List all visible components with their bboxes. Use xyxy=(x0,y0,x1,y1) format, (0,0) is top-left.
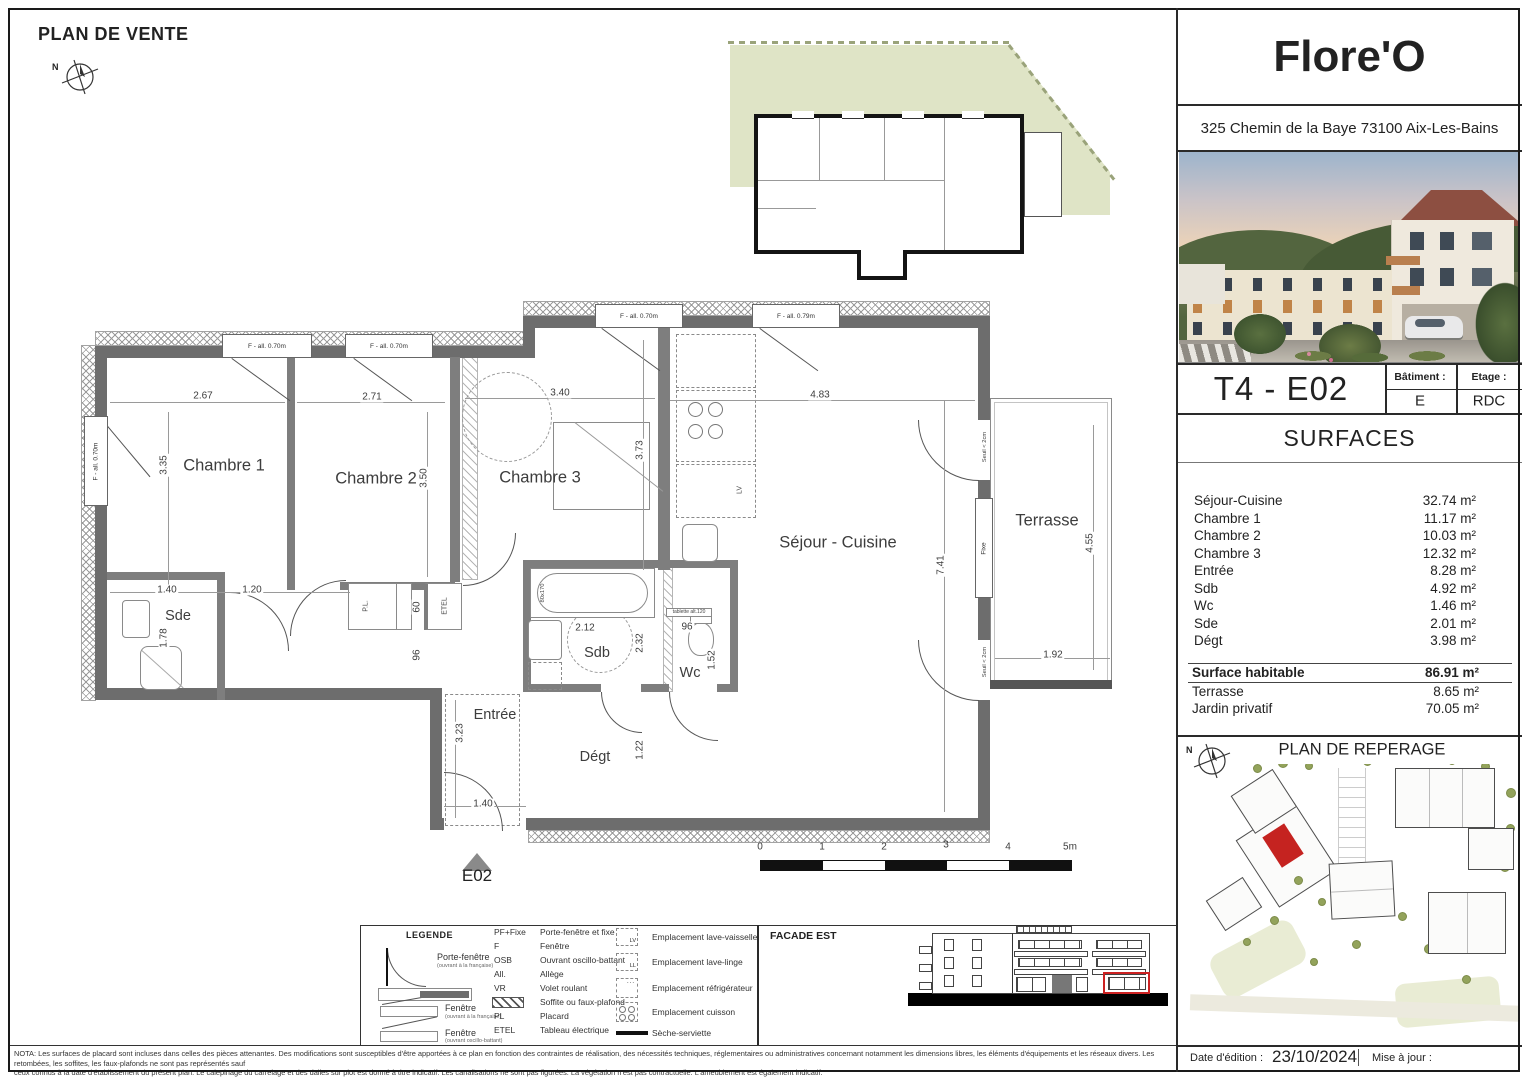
inset-partition xyxy=(758,180,944,181)
scale-tick: 3 xyxy=(941,840,951,851)
inset-partition xyxy=(758,208,816,209)
dim-line xyxy=(427,412,428,577)
placard-label: P.L. xyxy=(363,600,370,612)
project-address: 325 Chemin de la Baye 73100 Aix-Les-Bain… xyxy=(1201,120,1499,137)
turning-circle xyxy=(462,372,552,462)
dim-line xyxy=(455,700,456,818)
legend-abbr: F xyxy=(494,941,499,951)
dim: 1.40 xyxy=(155,585,178,596)
facade-roof-rail xyxy=(1016,926,1072,933)
window-label: F - all. 0.70m xyxy=(248,343,286,350)
legend-drawing-sub: (ouvrant oscillo-battant) xyxy=(445,1038,502,1044)
reperage-north-label: N xyxy=(1186,745,1193,755)
dim: 3.23 xyxy=(455,721,466,744)
room-label-sde: Sde xyxy=(165,608,191,624)
seuil-label: Seuil < 2cm xyxy=(982,432,988,462)
total-value: 70.05 m² xyxy=(1426,700,1479,718)
legend-door-leaf xyxy=(386,948,388,986)
window-label: F - all. 0.70m xyxy=(93,442,100,480)
dim-line xyxy=(944,400,945,812)
scale-tick: 5m xyxy=(1061,842,1079,853)
facade-balcony-slab xyxy=(1014,969,1088,975)
sidebar-divider xyxy=(1176,8,1178,1072)
chambre3-door-arc xyxy=(463,533,516,586)
jardin-inset xyxy=(722,22,1122,267)
fixed-window-terrasse: Fixe xyxy=(975,498,993,598)
bathtub-size-label: 80x170 xyxy=(540,583,546,602)
facade-balcony xyxy=(919,982,932,990)
facade-balcony-slab xyxy=(1014,951,1088,957)
photo-building-far xyxy=(1179,264,1225,304)
ll-symbol: LL xyxy=(630,963,636,969)
total-value: 86.91 m² xyxy=(1425,664,1479,682)
facade-window xyxy=(972,939,982,951)
seuil-label: Seuil < 2cm xyxy=(982,647,988,677)
dim: 1.40 xyxy=(471,799,494,810)
legend-drawing-sub: (ouvrant à la française) xyxy=(437,963,493,969)
date-edition-value: 23/10/2024 xyxy=(1272,1047,1357,1067)
window-swing-line xyxy=(759,328,818,371)
surface-total-row: Terrasse8.65 m² xyxy=(1188,683,1512,701)
towel-rail-icon xyxy=(616,1031,648,1035)
dim: 3.73 xyxy=(635,438,646,461)
dim: 3.40 xyxy=(548,388,571,399)
wc-door-arc xyxy=(669,692,718,741)
dim: 1.52 xyxy=(707,648,718,671)
total-label: Surface habitable xyxy=(1192,664,1305,682)
closet-divider xyxy=(396,583,397,630)
surface-value: 2.01 m² xyxy=(1430,615,1476,633)
facade-window xyxy=(1076,977,1088,992)
plan-de-vente-sheet: PLAN DE VENTE N xyxy=(0,0,1530,1080)
window-swing-line xyxy=(107,426,150,477)
legend-abbr: OSB xyxy=(494,955,512,965)
north-label: N xyxy=(52,62,59,72)
door-arc xyxy=(918,420,979,481)
burner-icon xyxy=(708,402,723,417)
surface-row: Chambre 312.32 m² xyxy=(1179,545,1520,563)
surface-total-row: Jardin privatif70.05 m² xyxy=(1188,700,1512,718)
site-plan xyxy=(1179,764,1520,1044)
site-building xyxy=(1428,892,1506,954)
legend-abbr: PF+Fixe xyxy=(494,927,526,937)
legend-drawing-label: Fenêtre xyxy=(445,1028,476,1038)
total-label: Jardin privatif xyxy=(1192,700,1272,718)
window-swing-line xyxy=(601,328,660,371)
dim: 2.32 xyxy=(635,631,646,654)
legend-abbr: ETEL xyxy=(494,1025,515,1035)
scale-tick: 4 xyxy=(1003,842,1013,853)
surfaces-totals: Surface habitable86.91 m² Terrasse8.65 m… xyxy=(1188,663,1512,718)
fridge-dots: ... xyxy=(627,979,635,985)
total-value: 8.65 m² xyxy=(1433,683,1479,701)
dishwasher-label: LV xyxy=(737,486,744,494)
placement-label: Emplacement réfrigérateur xyxy=(652,983,753,993)
facade-window xyxy=(972,975,982,987)
surface-value: 10.03 m² xyxy=(1423,527,1476,545)
room-label-terrasse: Terrasse xyxy=(1015,512,1078,531)
wall xyxy=(430,694,442,830)
partition xyxy=(450,357,460,582)
facade-entrance xyxy=(1052,975,1072,993)
lv-symbol: LV xyxy=(630,938,636,944)
burner-icon xyxy=(688,424,703,439)
surface-value: 4.92 m² xyxy=(1430,580,1476,598)
partition xyxy=(107,572,225,580)
photo-flowers xyxy=(1307,352,1311,356)
legend-sill-fill xyxy=(420,991,469,998)
scale-seg xyxy=(761,861,823,870)
window-chambre1-left: F - all. 0.70m xyxy=(84,416,108,506)
etel-label: ETEL xyxy=(442,597,449,615)
etage-value: RDC xyxy=(1473,393,1506,410)
facade-window-band xyxy=(1018,958,1082,967)
room-label-wc: Wc xyxy=(680,665,701,681)
legend-abbr-label: Soffite ou faux-plafond xyxy=(540,997,625,1007)
facade-ground-windows xyxy=(1016,977,1046,992)
nota-box: NOTA: Les surfaces de placard sont inclu… xyxy=(8,1045,1177,1072)
dim: 60 xyxy=(412,599,423,614)
facade-window-band xyxy=(1096,940,1142,949)
surface-value: 11.17 m² xyxy=(1424,510,1476,528)
legend-abbr: VR xyxy=(494,983,506,993)
divider xyxy=(1177,735,1522,737)
surface-label: Sde xyxy=(1194,615,1218,633)
surface-label: Entrée xyxy=(1194,562,1234,580)
legend-drawing-label: Porte-fenêtre xyxy=(437,952,490,962)
dim: 3.35 xyxy=(159,453,170,476)
dim: 1.92 xyxy=(1041,650,1064,661)
window-swing-line xyxy=(231,358,290,401)
legend-window xyxy=(380,1006,438,1017)
surface-value: 32.74 m² xyxy=(1423,492,1476,510)
project-title-block: Flore'O xyxy=(1179,10,1520,104)
facade-ground xyxy=(908,993,1168,1006)
surface-label: Chambre 2 xyxy=(1194,527,1261,545)
surfaces-heading: SURFACES xyxy=(1284,425,1416,452)
legend-drawing-label: Fenêtre xyxy=(445,1003,476,1013)
terrasse-sill xyxy=(990,680,1112,689)
legend-abbr-label: Volet roulant xyxy=(540,983,587,993)
legend-window-open-line xyxy=(382,1016,437,1029)
nota-line1: NOTA: Les surfaces de placard sont inclu… xyxy=(14,1049,1171,1068)
surface-value: 1.46 m² xyxy=(1430,597,1476,615)
scale-seg xyxy=(947,861,1009,870)
batiment-label: Bâtiment : xyxy=(1394,371,1445,383)
chambre1-door-arc xyxy=(230,592,289,651)
sdb-door-arc xyxy=(601,692,642,733)
window-sejour: F - all. 0.79m xyxy=(752,304,840,328)
surface-label: Wc xyxy=(1194,597,1214,615)
entry-marker-label: E02 xyxy=(462,866,492,886)
dim-line xyxy=(168,412,169,585)
legend-abbr-label: Ouvrant oscillo-battant xyxy=(540,955,625,965)
facade-inner-line xyxy=(1012,933,1013,993)
surface-row: Séjour-Cuisine32.74 m² xyxy=(1179,492,1520,510)
scale-seg xyxy=(885,861,947,870)
photo-shrubs xyxy=(1275,348,1465,363)
site-building xyxy=(1468,828,1514,870)
legend-drawing-sub: (ouvrant à la française) xyxy=(445,1014,501,1020)
legend-abbr-label: Porte-fenêtre et fixe xyxy=(540,927,615,937)
dim: 4.83 xyxy=(808,390,831,401)
soffit-swatch-icon xyxy=(492,997,524,1008)
legend-window-ob xyxy=(380,1031,438,1042)
inset-partition xyxy=(944,118,945,250)
dim: 1.78 xyxy=(159,626,170,649)
dim: 2.71 xyxy=(360,392,383,403)
photo-tree xyxy=(1475,282,1520,363)
inset-window xyxy=(842,111,864,119)
site-green-patch xyxy=(1206,916,1310,1002)
fixe-label: Fixe xyxy=(981,542,988,554)
inset-window xyxy=(962,111,984,119)
surface-row: Sde2.01 m² xyxy=(1179,615,1520,633)
lv-placement-icon: LV xyxy=(616,928,638,946)
facade-window xyxy=(944,975,954,987)
dim: 3.50 xyxy=(419,466,430,489)
legend-abbr-label: Tableau électrique xyxy=(540,1025,609,1035)
facade-window xyxy=(972,957,982,969)
surface-value: 8.28 m² xyxy=(1430,562,1476,580)
surface-row: Entrée8.28 m² xyxy=(1179,562,1520,580)
dim: 96 xyxy=(412,647,423,662)
date-edition-label: Date d'édition : xyxy=(1190,1052,1263,1064)
placement-label: Sèche-serviette xyxy=(652,1028,711,1038)
inset-entry-notch xyxy=(857,250,907,280)
room-label-chambre2: Chambre 2 xyxy=(335,470,417,489)
scale-bar xyxy=(760,860,1072,871)
washbasin xyxy=(528,620,562,660)
dim: 2.12 xyxy=(573,623,596,634)
legend-abbr: All. xyxy=(494,969,506,979)
legend-abbr: PL xyxy=(494,1011,504,1021)
dim: 2.67 xyxy=(191,391,214,402)
partition xyxy=(641,684,669,692)
facade-window-band xyxy=(1018,940,1082,949)
north-compass-icon xyxy=(58,56,100,98)
window-chambre1: F - all. 0.70m xyxy=(222,334,312,358)
unit-id-cell: T4 - E02 xyxy=(1177,365,1385,413)
partition xyxy=(658,328,670,570)
batiment-value: E xyxy=(1415,393,1425,410)
surface-total-row: Surface habitable86.91 m² xyxy=(1188,663,1512,683)
facade-window xyxy=(944,939,954,951)
legend-abbr-label: Placard xyxy=(540,1011,569,1021)
surface-label: Sdb xyxy=(1194,580,1218,598)
sde-washbasin xyxy=(122,600,150,638)
partition xyxy=(717,684,738,692)
surfaces-table: Séjour-Cuisine32.74 m² Chambre 111.17 m²… xyxy=(1179,492,1520,650)
site-building xyxy=(1329,860,1396,919)
tablette-label: tablette alt.120 xyxy=(673,609,706,615)
etage-label: Etage : xyxy=(1471,371,1506,383)
wall xyxy=(430,818,444,830)
sheet-title: PLAN DE VENTE xyxy=(38,24,189,45)
building-photo xyxy=(1179,152,1520,363)
wall-hatch xyxy=(81,345,96,701)
surface-label: Chambre 3 xyxy=(1194,545,1261,563)
mise-a-jour-label: Mise à jour : xyxy=(1372,1052,1432,1064)
facade-balcony-slab xyxy=(1092,951,1146,957)
surface-label: Séjour-Cuisine xyxy=(1194,492,1283,510)
surface-value: 12.32 m² xyxy=(1423,545,1476,563)
window-label: F - all. 0.70m xyxy=(370,343,408,350)
inset-apartment-outline xyxy=(754,114,1024,254)
partition-hatch xyxy=(663,560,673,692)
inset-partition xyxy=(819,118,820,180)
unit-id: T4 - E02 xyxy=(1214,370,1349,408)
washer-placement xyxy=(528,662,562,690)
inset-terrasse xyxy=(1024,132,1062,217)
legend-door-arc xyxy=(387,948,426,987)
burner-icon xyxy=(708,424,723,439)
surface-row: Chambre 111.17 m² xyxy=(1179,510,1520,528)
surface-row: Dégt3.98 m² xyxy=(1179,632,1520,650)
facade-unit-highlight xyxy=(1103,972,1150,994)
ll-placement-icon: LL xyxy=(616,953,638,971)
legend-abbr-label: Allège xyxy=(540,969,564,979)
inset-window xyxy=(902,111,924,119)
room-label-sejour: Séjour - Cuisine xyxy=(779,534,896,553)
surface-row: Sdb4.92 m² xyxy=(1179,580,1520,598)
chambre2-door-arc xyxy=(290,580,346,636)
dishwasher-placement xyxy=(676,464,756,518)
fridge-placement xyxy=(676,334,756,388)
partition xyxy=(287,357,295,590)
dim: 7.41 xyxy=(936,553,947,576)
wall xyxy=(95,346,535,358)
facade-window-band xyxy=(1096,958,1142,967)
hedge-line xyxy=(728,41,1012,44)
door-arc xyxy=(918,640,979,701)
divider xyxy=(1385,389,1522,390)
cooktop-placement-icon xyxy=(616,1002,638,1022)
wall xyxy=(95,346,107,700)
dim: 1.22 xyxy=(635,738,646,761)
window-label: F - all. 0.70m xyxy=(620,313,658,320)
dim: 4.55 xyxy=(1085,531,1096,554)
room-label-degt: Dégt xyxy=(580,749,611,765)
inset-window xyxy=(792,111,814,119)
placement-label: Emplacement lave-linge xyxy=(652,957,743,967)
partition xyxy=(730,560,738,692)
legend-heading: LEGENDE xyxy=(406,930,453,940)
scale-tick: 1 xyxy=(817,842,827,853)
date-divider xyxy=(1358,1049,1359,1066)
window-chambre2: F - all. 0.70m xyxy=(345,334,433,358)
reperage-heading: PLAN DE REPERAGE xyxy=(1279,741,1446,760)
address-block: 325 Chemin de la Baye 73100 Aix-Les-Bain… xyxy=(1179,106,1520,150)
scale-seg xyxy=(1009,861,1071,870)
room-label-chambre3: Chambre 3 xyxy=(499,469,581,488)
room-label-entree: Entrée xyxy=(474,707,517,723)
window-chambre3: F - all. 0.70m xyxy=(595,304,683,328)
facade-heading: FACADE EST xyxy=(770,930,837,942)
site-building xyxy=(1395,768,1495,828)
dim: 1.20 xyxy=(240,585,263,596)
bed-outline xyxy=(553,422,650,510)
scale-tick: 2 xyxy=(879,842,889,853)
surface-label: Dégt xyxy=(1194,632,1223,650)
surface-row: Chambre 210.03 m² xyxy=(1179,527,1520,545)
facade-balcony xyxy=(919,946,932,954)
kitchen-sink xyxy=(682,524,718,562)
inset-partition xyxy=(884,118,885,180)
room-label-chambre1: Chambre 1 xyxy=(183,457,265,476)
scale-seg xyxy=(823,861,885,870)
placement-label: Emplacement cuisson xyxy=(652,1007,735,1017)
total-label: Terrasse xyxy=(1192,683,1244,701)
legend-abbr-label: Fenêtre xyxy=(540,941,569,951)
facade-balcony xyxy=(919,964,932,972)
placement-label: Emplacement lave-vaisselle xyxy=(652,932,757,942)
wall xyxy=(526,818,990,830)
nota-line2: ceux connus à la date d'établissement du… xyxy=(14,1068,1171,1078)
photo-car xyxy=(1405,316,1463,338)
surface-label: Chambre 1 xyxy=(1194,510,1261,528)
fridge-placement-icon: ... xyxy=(616,978,638,998)
dim: 96 xyxy=(679,622,694,633)
legend-facade-divider xyxy=(757,925,759,1045)
wall-hatch xyxy=(95,331,535,346)
burner-icon xyxy=(688,402,703,417)
dim-line xyxy=(110,592,350,593)
bathtub-inner xyxy=(537,573,648,613)
facade-window xyxy=(944,957,954,969)
surface-row: Wc1.46 m² xyxy=(1179,597,1520,615)
dim-line xyxy=(110,402,285,403)
divider xyxy=(1177,462,1522,463)
scale-tick: 0 xyxy=(755,842,765,853)
project-name: Flore'O xyxy=(1273,32,1425,82)
surfaces-heading-block: SURFACES xyxy=(1177,415,1522,462)
window-label: F - all. 0.79m xyxy=(777,313,815,320)
surface-value: 3.98 m² xyxy=(1430,632,1476,650)
placard-closet xyxy=(348,583,412,630)
room-label-sdb: Sdb xyxy=(584,645,610,661)
